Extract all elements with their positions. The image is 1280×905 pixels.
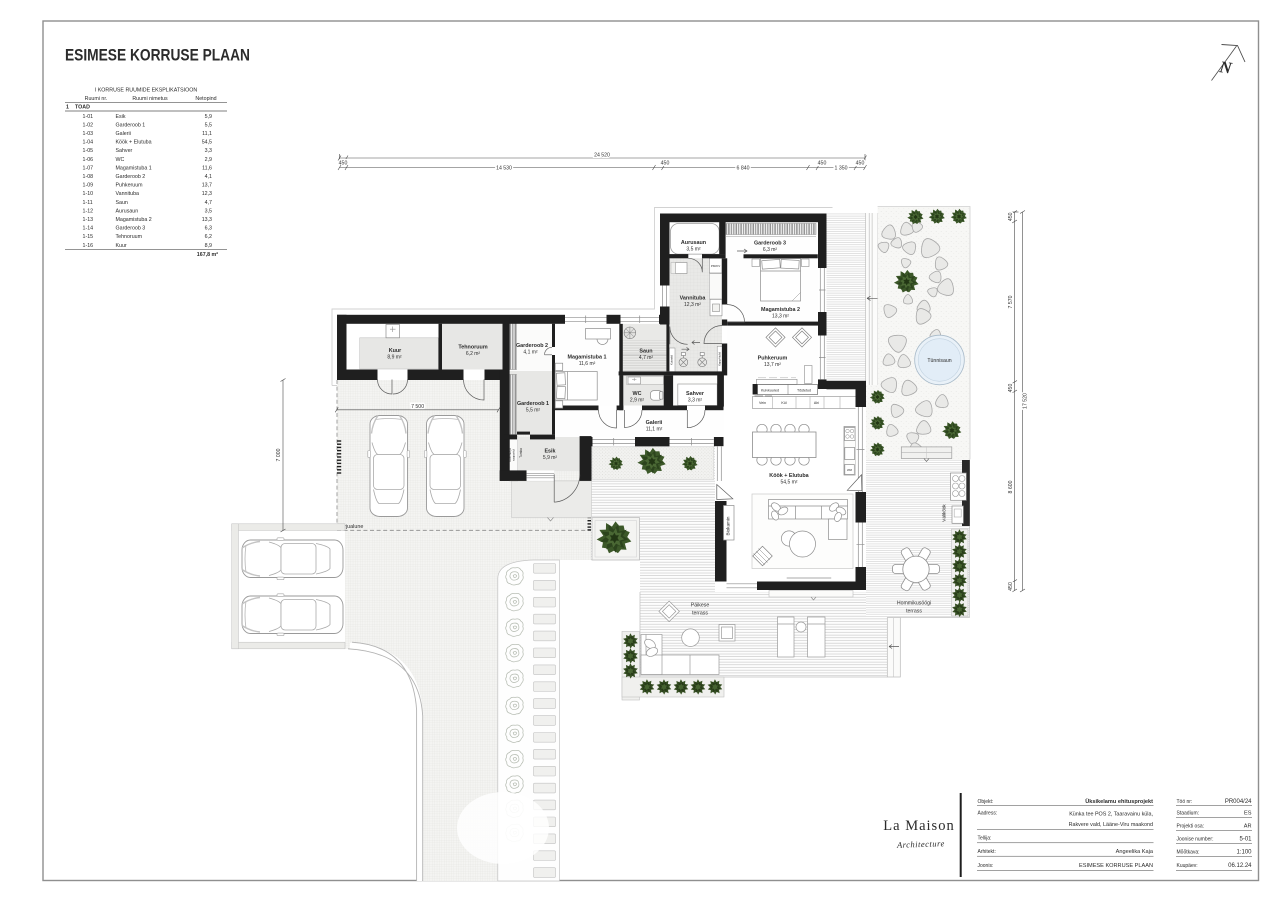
svg-text:Magamistuba 2: Magamistuba 2 [761,307,800,313]
svg-text:3,5: 3,5 [205,208,212,214]
svg-text:24 520: 24 520 [594,152,610,158]
svg-text:Magamistuba 1: Magamistuba 1 [116,165,152,171]
svg-text:Garderoob 2: Garderoob 2 [116,174,146,180]
svg-text:Galerii: Galerii [646,420,663,426]
svg-text:Magamistuba 2: Magamistuba 2 [116,217,152,223]
svg-text:450: 450 [661,160,670,166]
svg-text:Garderoob 2: Garderoob 2 [516,343,548,349]
svg-text:Garderoob 1: Garderoob 1 [517,401,549,407]
svg-text:terrass: terrass [906,609,922,615]
svg-text:Angeelika Kaja: Angeelika Kaja [1116,849,1154,855]
svg-text:Architecture: Architecture [896,838,945,850]
svg-text:Kuur: Kuur [116,243,127,249]
svg-text:Kuur: Kuur [389,348,402,354]
svg-text:14 530: 14 530 [496,166,512,172]
svg-text:Garderoob 1: Garderoob 1 [116,122,146,128]
svg-text:Saun: Saun [116,200,128,206]
svg-text:450: 450 [856,160,865,166]
svg-text:5-01: 5-01 [1239,836,1252,842]
svg-text:ESIMESE KORRUSE PLAAN: ESIMESE KORRUSE PLAAN [1079,863,1153,869]
svg-text:6,2: 6,2 [205,234,212,240]
svg-text:12,3: 12,3 [202,191,212,197]
svg-text:Ruumi nr.: Ruumi nr. [85,96,108,102]
svg-text:Garderoob 3: Garderoob 3 [116,226,146,232]
svg-text:Projekti osa:: Projekti osa: [1177,823,1205,829]
svg-text:1-14: 1-14 [83,226,94,232]
svg-text:Sahver: Sahver [116,148,133,154]
svg-text:4,1 m²: 4,1 m² [523,350,538,356]
svg-text:167,8 m²: 167,8 m² [197,252,218,258]
svg-text:Hommikusöögi: Hommikusöögi [897,601,931,607]
svg-text:3,5 m²: 3,5 m² [686,247,701,253]
svg-text:Magamistuba 1: Magamistuba 1 [568,355,607,361]
svg-text:Esik: Esik [116,114,126,120]
svg-text:1-15: 1-15 [83,234,94,240]
svg-text:1-02: 1-02 [83,122,94,128]
svg-text:La Maison: La Maison [883,818,954,834]
svg-text:3,3 m²: 3,3 m² [688,398,703,404]
svg-text:Staadium:: Staadium: [1177,810,1200,816]
svg-text:Biokamin: Biokamin [726,516,731,535]
svg-text:3,3: 3,3 [205,148,212,154]
svg-text:ES: ES [1244,810,1252,816]
svg-text:AR: AR [1244,823,1252,829]
svg-text:8,9: 8,9 [205,243,212,249]
svg-text:1-16: 1-16 [83,243,94,249]
svg-text:450: 450 [818,160,827,166]
svg-text:terrass: terrass [692,611,708,617]
svg-text:Netopind: Netopind [195,96,216,102]
svg-text:6,3 m²: 6,3 m² [763,247,778,253]
svg-text:8,9 m²: 8,9 m² [387,355,402,361]
svg-text:1: 1 [66,105,69,111]
svg-text:7 570: 7 570 [1008,295,1014,308]
svg-text:8 600: 8 600 [1008,480,1014,493]
svg-text:Kül: Kül [781,401,786,405]
svg-text:7 000: 7 000 [276,448,282,461]
svg-text:Puhkeruum: Puhkeruum [116,183,144,189]
svg-text:Välikõök: Välikõök [942,504,947,522]
svg-text:Vannituba: Vannituba [680,296,707,302]
svg-text:Objekt:: Objekt: [978,799,994,805]
svg-text:Tehnoruum: Tehnoruum [458,345,487,351]
svg-text:11,1 m²: 11,1 m² [646,427,663,433]
svg-text:Arhitekt:: Arhitekt: [978,849,996,855]
svg-text:PR004/24: PR004/24 [1225,799,1252,805]
svg-text:TOAD: TOAD [75,105,90,111]
svg-text:1-08: 1-08 [83,174,94,180]
svg-text:Tõstetud: Tõstetud [797,388,811,392]
svg-text:4,1: 4,1 [205,174,212,180]
svg-text:Vannituba: Vannituba [116,191,140,197]
svg-text:11,1: 11,1 [202,131,212,137]
svg-text:Rakvere vald, Lääne-Viru maako: Rakvere vald, Lääne-Viru maakond [1069,822,1153,828]
svg-text:Tünnisaun: Tünnisaun [927,358,951,364]
svg-text:54,5: 54,5 [202,140,212,146]
svg-text:13,3 m²: 13,3 m² [772,314,789,320]
svg-text:54,5 m²: 54,5 m² [781,480,798,486]
svg-text:Joonise number:: Joonise number: [1177,836,1214,842]
svg-text:Aurusaun: Aurusaun [116,208,139,214]
svg-text:5,9: 5,9 [205,114,212,120]
svg-text:1-07: 1-07 [83,165,94,171]
svg-text:1-12: 1-12 [83,208,94,214]
svg-text:Aadress:: Aadress: [978,810,998,816]
svg-text:1-01: 1-01 [83,114,94,120]
svg-text:Tumba: Tumba [519,448,523,458]
svg-text:Kapp/riiulid: Kapp/riiulid [718,352,722,366]
svg-text:450: 450 [1008,212,1014,221]
svg-text:450: 450 [1008,582,1014,591]
svg-text:1-06: 1-06 [83,157,94,163]
svg-text:I KORRUSE RUUMIDE EKSPLIKATSIO: I KORRUSE RUUMIDE EKSPLIKATSIOON [95,88,198,94]
svg-text:Ahi: Ahi [814,401,819,405]
svg-text:1 350: 1 350 [835,166,848,172]
svg-text:saapariiul: saapariiul [511,449,515,461]
svg-text:Tehnoruum: Tehnoruum [116,234,143,240]
svg-text:1:100: 1:100 [1236,849,1252,855]
svg-text:Kuupäev:: Kuupäev: [1177,863,1198,869]
svg-text:Päikese: Päikese [691,603,710,609]
svg-text:5,5 m²: 5,5 m² [526,408,541,414]
svg-text:Ruumi nimetus: Ruumi nimetus [132,96,168,102]
svg-text:WC: WC [116,157,125,163]
svg-text:Joonis:: Joonis: [978,863,994,869]
svg-text:Sahver: Sahver [686,391,705,397]
svg-text:5,9 m²: 5,9 m² [543,455,558,461]
svg-text:5,5: 5,5 [205,122,212,128]
svg-text:11,6: 11,6 [202,165,212,171]
svg-text:4,7 m²: 4,7 m² [639,355,654,361]
svg-text:450: 450 [1008,384,1014,393]
svg-text:6 840: 6 840 [737,166,750,172]
svg-text:Aurusaun: Aurusaun [681,240,706,246]
svg-text:450: 450 [339,161,348,167]
svg-text:Garderoob 3: Garderoob 3 [754,241,786,247]
svg-text:1-09: 1-09 [83,183,94,189]
svg-text:Köök + Elutuba: Köök + Elutuba [769,473,809,479]
svg-text:Töö nr:: Töö nr: [1177,799,1193,805]
svg-text:PM/KV: PM/KV [711,264,720,268]
svg-text:17 520: 17 520 [1023,393,1029,409]
svg-text:13,3: 13,3 [202,217,212,223]
svg-text:Künka tee POS 2, Taaravainu kü: Künka tee POS 2, Taaravainu küla, [1069,812,1153,818]
svg-text:1-10: 1-10 [83,191,94,197]
svg-text:6,3: 6,3 [205,226,212,232]
svg-text:Üksikelamu ehitusprojekt: Üksikelamu ehitusprojekt [1085,798,1153,805]
svg-text:13,7: 13,7 [202,183,212,189]
svg-text:1-04: 1-04 [83,140,94,146]
svg-text:WM: WM [847,468,853,472]
svg-text:06.12.24: 06.12.24 [1228,863,1252,869]
svg-text:Esik: Esik [544,449,555,455]
svg-text:Vein: Vein [759,401,766,405]
svg-text:Tellija:: Tellija: [978,835,992,841]
svg-text:1-13: 1-13 [83,217,94,223]
svg-text:Köök + Elutuba: Köök + Elutuba [116,140,152,146]
svg-text:7 500: 7 500 [411,404,424,410]
svg-text:1-03: 1-03 [83,131,94,137]
svg-text:Kuivkuured: Kuivkuured [761,388,779,392]
svg-text:ESIMESE KORRUSE PLAAN: ESIMESE KORRUSE PLAAN [65,47,250,65]
svg-text:12,3 m²: 12,3 m² [684,302,701,308]
svg-text:2,9: 2,9 [205,157,212,163]
svg-text:Galerii: Galerii [116,131,131,137]
svg-text:4,7: 4,7 [205,200,212,206]
svg-text:1-11: 1-11 [83,200,93,206]
svg-text:Mõõtkava:: Mõõtkava: [1177,849,1200,855]
svg-text:6,2 m²: 6,2 m² [466,351,481,357]
svg-text:11,6 m²: 11,6 m² [579,361,596,367]
svg-text:2,9 m²: 2,9 m² [630,398,645,404]
svg-text:Puhkeruum: Puhkeruum [758,356,788,362]
svg-text:13,7 m²: 13,7 m² [764,362,781,368]
svg-text:1-05: 1-05 [83,148,94,154]
svg-text:WC: WC [633,391,642,397]
svg-text:Kuivatid: Kuivatid [669,355,673,365]
svg-text:Saun: Saun [639,349,652,355]
